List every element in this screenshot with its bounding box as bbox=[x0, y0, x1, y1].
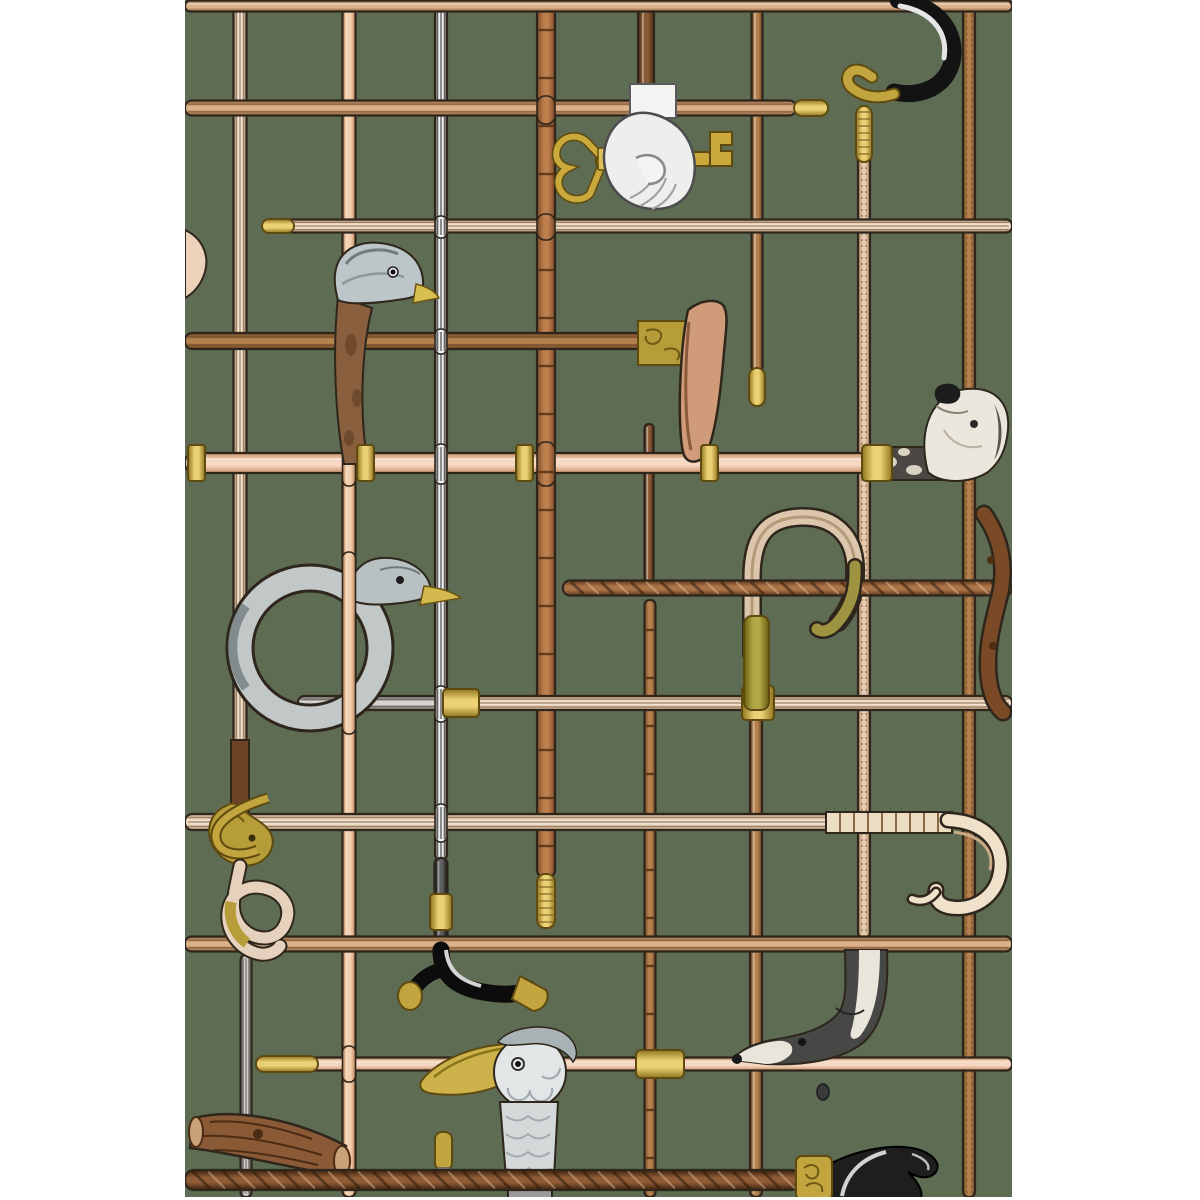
silver-fluted-cane bbox=[435, 0, 447, 860]
brass-clip bbox=[188, 445, 205, 481]
bamboo-cane bbox=[537, 0, 555, 878]
redwood-cane bbox=[963, 0, 975, 1197]
brass-band bbox=[430, 894, 452, 930]
cane-weave-patch bbox=[343, 1046, 356, 1082]
brass-ferrule-tip bbox=[794, 100, 828, 116]
cane-weave-patch bbox=[537, 214, 555, 240]
steel-cane-lower bbox=[241, 955, 252, 1197]
dark-twist-row bbox=[185, 1170, 800, 1190]
cane-weave-patch bbox=[435, 216, 447, 238]
wallpaper-product-image: Illustrated wallpaper panel on a sage gr… bbox=[0, 0, 1200, 1200]
brass-ferrule bbox=[537, 874, 555, 928]
twig-cane bbox=[645, 424, 654, 584]
brass-section bbox=[256, 1056, 318, 1072]
brown-cane-upper bbox=[752, 0, 763, 372]
brass-clip bbox=[701, 445, 718, 481]
brass-collar bbox=[862, 445, 892, 481]
bamboo-cane-lower bbox=[645, 600, 656, 1197]
snakeskin-collar bbox=[744, 616, 769, 710]
pale-cane-row bbox=[276, 220, 1012, 233]
brass-collar bbox=[636, 1050, 684, 1078]
cane-weave-patch bbox=[537, 96, 555, 124]
brass-collar bbox=[443, 689, 479, 717]
brass-ferrule-tip bbox=[749, 368, 765, 406]
whalebone-segment-shaft bbox=[826, 812, 952, 833]
ornate-collar bbox=[796, 1156, 832, 1200]
cane-weave-patch bbox=[343, 552, 356, 734]
cane-weave-patch bbox=[435, 804, 447, 842]
brass-ferrule-cap bbox=[262, 219, 294, 233]
top-edge-cane bbox=[185, 1, 1012, 12]
brass-clip bbox=[516, 445, 533, 481]
wallpaper-figure: Illustrated wallpaper panel on a sage gr… bbox=[0, 0, 1200, 1200]
brass-tip-cane bbox=[185, 101, 796, 116]
barley-twist-row bbox=[563, 581, 1012, 596]
ribbed-brown-row bbox=[185, 333, 642, 349]
ribbed-pale-row bbox=[185, 814, 836, 830]
cane-weave-patch bbox=[537, 442, 555, 486]
brass-ferrule bbox=[856, 106, 872, 162]
canes-wallpaper-art bbox=[0, 0, 1200, 1200]
cane-tip-dot bbox=[817, 1084, 829, 1100]
brass-clip bbox=[357, 445, 374, 481]
cane-weave-patch bbox=[435, 329, 447, 354]
pale-shaft-row bbox=[447, 696, 1012, 710]
cane-weave-patch bbox=[435, 444, 447, 484]
